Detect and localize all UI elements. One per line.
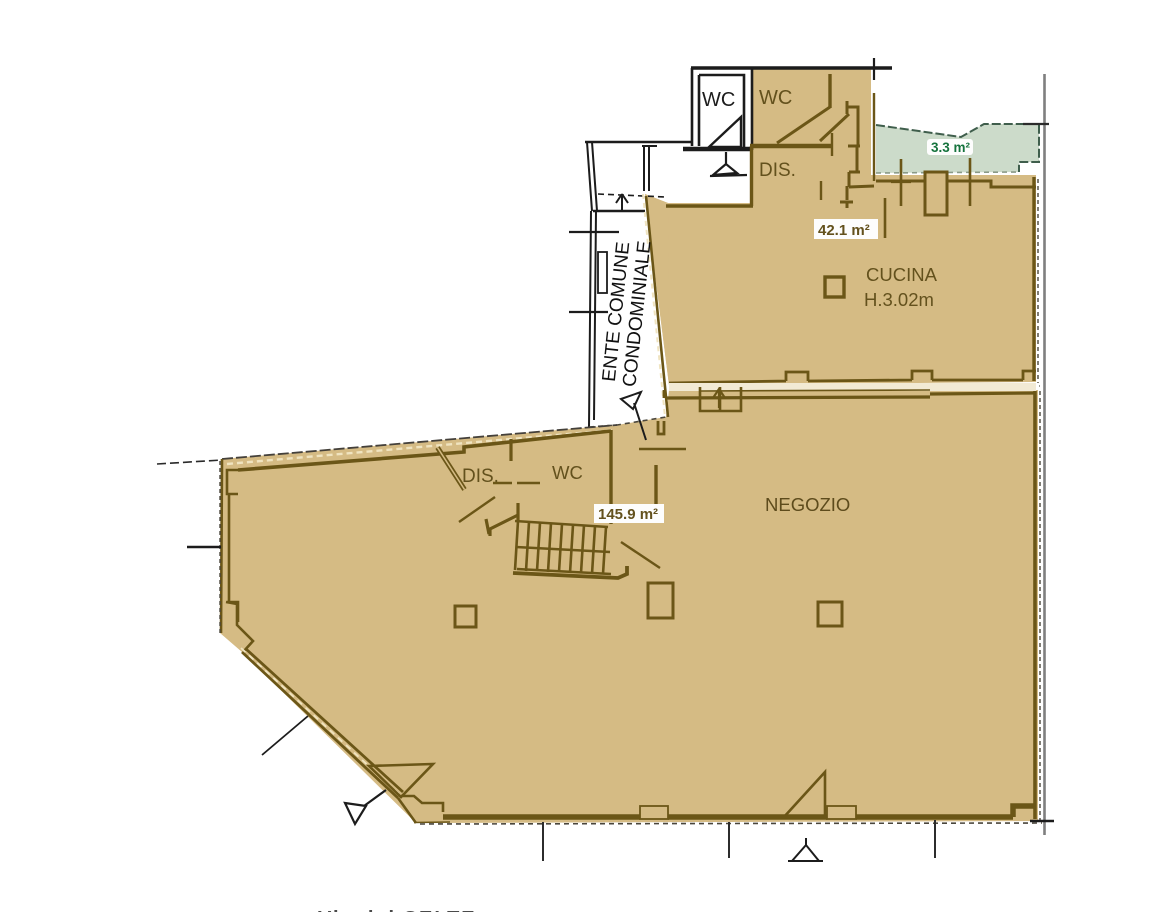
svg-text:CUCINA: CUCINA <box>866 264 938 285</box>
svg-text:H.3.02m: H.3.02m <box>864 289 934 310</box>
svg-text:WC: WC <box>759 87 792 109</box>
svg-text:WC: WC <box>702 89 735 111</box>
svg-text:NEGOZIO: NEGOZIO <box>765 494 850 515</box>
svg-text:145.9 m²: 145.9 m² <box>598 506 658 523</box>
svg-text:Via del SELTE: Via del SELTE <box>318 908 477 912</box>
svg-text:WC: WC <box>552 462 583 483</box>
svg-text:DIS.: DIS. <box>759 160 796 181</box>
svg-text:3.3 m²: 3.3 m² <box>931 140 971 155</box>
svg-text:42.1 m²: 42.1 m² <box>818 222 870 239</box>
